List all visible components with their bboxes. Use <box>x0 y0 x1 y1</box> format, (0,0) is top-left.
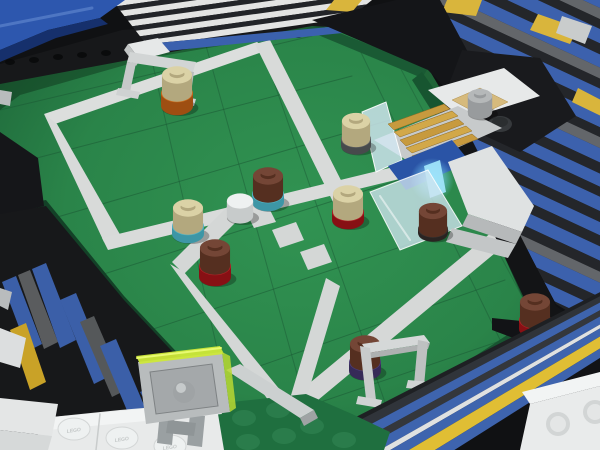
green-stud <box>272 428 296 444</box>
white-ball-piece-brick-top <box>227 193 253 208</box>
tan-piece-on-orange-stud-top <box>169 67 184 75</box>
brown-piece-on-red-right-stud-top <box>527 294 542 302</box>
tan-piece-on-azure-stud-top <box>180 200 195 208</box>
tan-piece-on-red-stud-top <box>340 186 355 194</box>
screen-lens-highlight <box>176 383 186 393</box>
gray-round-brick-stud-top <box>474 89 486 96</box>
wall-stud <box>29 57 39 63</box>
brown-piece-on-azure-stud-top <box>260 168 275 176</box>
brown-piece-near-tunnel-stud-top <box>426 203 440 211</box>
wall-stud <box>5 59 15 65</box>
lego-stadium-render: LEGOLEGOLEGO <box>0 0 600 450</box>
green-stud <box>332 432 356 448</box>
brown-piece-on-red-left-stud-top <box>207 240 222 248</box>
wall-stud <box>53 54 63 60</box>
tan-piece-on-gray-stud-top <box>349 113 363 121</box>
gray-plate-left-edge <box>0 90 12 106</box>
wall-stud <box>77 52 87 58</box>
plate-tube-hole-rim <box>550 416 566 432</box>
green-stud <box>232 410 256 426</box>
white-plate-stack-left-2 <box>0 398 58 436</box>
stud-logo: LEGO <box>162 444 177 450</box>
stadium-scene: LEGOLEGOLEGO <box>0 0 600 450</box>
green-stud <box>236 434 260 450</box>
wall-stud <box>101 50 111 56</box>
